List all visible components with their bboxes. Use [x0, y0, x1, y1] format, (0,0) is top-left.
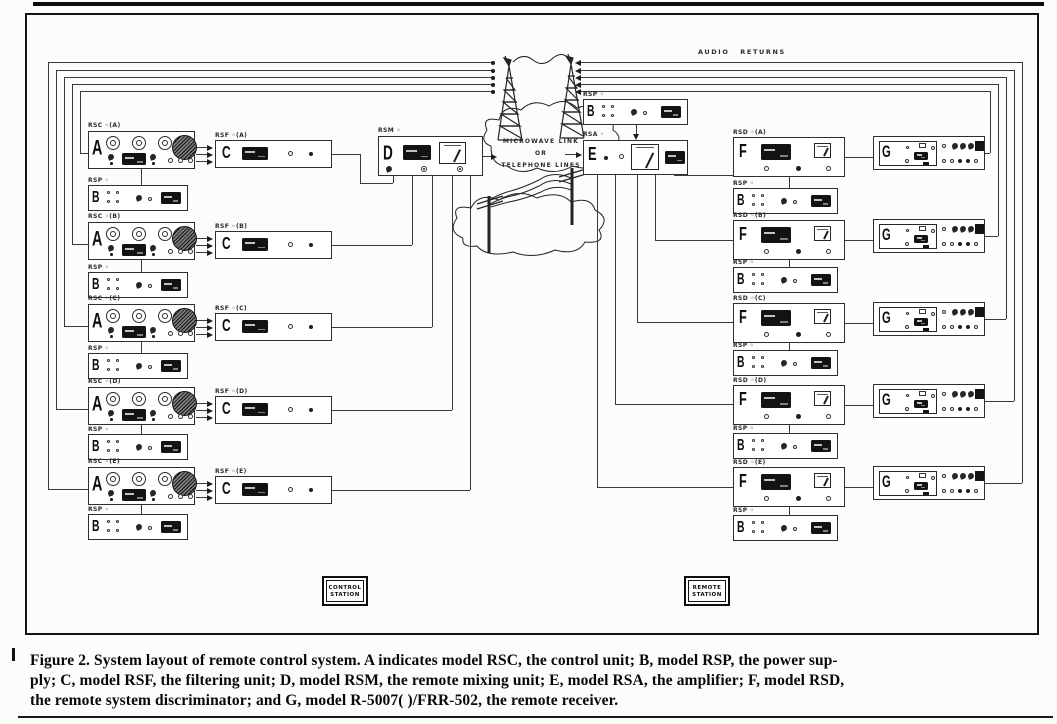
module-block	[975, 471, 984, 481]
jack-circle	[764, 166, 769, 171]
disc-to-receiver-line	[845, 405, 873, 406]
rsc-unit-d-tag: RSC ◦(D)	[88, 378, 121, 385]
pilot-dot	[110, 253, 113, 256]
arrowhead-icon	[207, 481, 213, 487]
rsc-unit-a: A	[88, 131, 195, 169]
jack-circle	[178, 331, 183, 336]
nameplate	[122, 326, 146, 338]
arrowhead-icon	[491, 154, 497, 160]
arrowhead-icon	[575, 68, 581, 74]
arrowhead-icon	[575, 89, 581, 95]
unit-letter: F	[739, 391, 747, 410]
unit-letter: B	[92, 357, 100, 372]
rsd-unit-e: F	[733, 467, 845, 507]
amp-output-line	[615, 404, 733, 405]
module-block	[975, 307, 984, 317]
rsp-unit-right-d-tag: RSP ◦	[733, 425, 754, 432]
vent-dot	[761, 282, 764, 285]
rsc-unit-e: A	[88, 467, 195, 505]
nameplate	[242, 147, 268, 160]
nameplate	[122, 489, 146, 501]
knob-icon	[132, 136, 146, 150]
small-knob-icon	[149, 153, 157, 161]
jack-circle	[826, 496, 831, 501]
jack-circle	[942, 242, 946, 246]
knob-icon	[132, 309, 146, 323]
unit-letter: B	[737, 354, 745, 369]
jack-circle	[931, 394, 935, 398]
small-knob-icon	[780, 197, 788, 205]
speaker-grille-icon	[172, 308, 197, 333]
rsf-unit-c: C	[215, 313, 332, 341]
jack-circle	[942, 310, 946, 314]
small-knob-icon	[967, 308, 975, 316]
jack-dot	[966, 325, 970, 329]
unit-letter: F	[739, 226, 747, 245]
psu-connector	[789, 177, 790, 188]
meter-icon	[814, 309, 831, 324]
control-station-inner: CONTROL STATION	[326, 580, 364, 602]
knob-icon	[106, 227, 120, 241]
filter-output	[393, 176, 394, 183]
dial-window	[919, 143, 926, 148]
vent-dot	[761, 521, 764, 524]
unit-letter: A	[92, 310, 102, 331]
module-block	[975, 224, 984, 234]
nameplate	[242, 483, 268, 496]
vent-dot	[107, 200, 110, 203]
receiver-output	[985, 236, 998, 237]
rsc-unit-b: A	[88, 222, 195, 260]
dial-window	[919, 309, 926, 314]
nameplate	[761, 227, 791, 243]
rsp-unit-right-c: B	[733, 350, 838, 376]
receiver-unit-d: G	[873, 384, 985, 418]
jack-dot	[309, 243, 313, 247]
receiver-unit-c: G	[873, 302, 985, 336]
unit-letter: B	[92, 438, 100, 453]
vent-dot	[116, 200, 119, 203]
small-knob-icon	[959, 142, 967, 150]
jack-dot	[958, 407, 962, 411]
nameplate	[403, 145, 431, 160]
vent-dot	[752, 439, 755, 442]
jack-circle	[950, 489, 954, 493]
vent-dot	[752, 448, 755, 451]
small-knob-icon	[135, 281, 143, 289]
vent-dot	[116, 520, 119, 523]
rsf-unit-b-tag: RSF ◦(B)	[215, 223, 247, 230]
unit-letter: B	[92, 518, 100, 533]
small-knob-icon	[107, 489, 115, 497]
rsd-unit-d-tag: RSD ◦(D)	[733, 377, 767, 384]
nameplate	[122, 409, 146, 421]
control-station-label-box: CONTROL STATION	[322, 576, 368, 606]
jack-circle	[178, 494, 183, 499]
receiver-unit-b: G	[873, 219, 985, 253]
vent-dot	[116, 449, 119, 452]
mixer-output	[483, 156, 491, 157]
figure-caption: Figure 2. System layout of remote contro…	[30, 651, 844, 711]
meter-icon	[631, 144, 659, 170]
vent-dot	[116, 440, 119, 443]
unit-letter: B	[737, 519, 745, 534]
audio-return-line	[72, 84, 493, 85]
rsd-unit-b: F	[733, 220, 845, 260]
arrowhead-icon	[575, 60, 581, 66]
small-knob-icon	[107, 409, 115, 417]
vent-dot	[906, 394, 909, 397]
remote-station-inner: REMOTE STATION	[688, 580, 726, 602]
nameplate	[665, 151, 685, 164]
jack-circle	[942, 159, 946, 163]
arrowhead-icon	[207, 488, 213, 494]
jack-circle	[826, 249, 831, 254]
arrowhead-icon	[207, 243, 213, 249]
nameplate	[914, 235, 928, 243]
link-cloud-label: TELEPHONE LINES	[486, 162, 596, 169]
small-knob-icon	[385, 165, 393, 173]
arrowhead-icon	[207, 415, 213, 421]
jack-circle	[974, 407, 978, 411]
vent-dot	[752, 273, 755, 276]
rsf-unit-a: C	[215, 140, 332, 168]
small-knob-icon	[967, 225, 975, 233]
remote-station-label-box: REMOTE STATION	[684, 576, 730, 606]
vent-dot	[116, 278, 119, 281]
control-input-line	[64, 326, 88, 327]
jack-circle	[942, 392, 946, 396]
arrowhead-icon	[207, 145, 213, 151]
unit-letter: C	[222, 144, 231, 162]
jack-circle	[974, 242, 978, 246]
small-knob-icon	[780, 359, 788, 367]
jack-circle	[950, 242, 954, 246]
rsd-unit-a: F	[733, 137, 845, 177]
control-input-line	[48, 489, 88, 490]
jack-circle	[942, 474, 946, 478]
disc-to-receiver-line	[845, 240, 873, 241]
nameplate	[761, 474, 791, 490]
microwave-tower-icon	[498, 56, 522, 140]
unit-letter: G	[882, 309, 891, 326]
small-knob-icon	[959, 308, 967, 316]
receiver-front-panel: G	[879, 141, 937, 166]
jack-circle	[764, 496, 769, 501]
receiver-front-panel: G	[879, 307, 937, 332]
filter-output	[432, 176, 433, 327]
jack-circle	[168, 249, 173, 254]
jack-dot	[958, 242, 962, 246]
amp-output-line	[655, 175, 656, 240]
disc-to-receiver-line	[845, 323, 873, 324]
nameplate	[914, 482, 928, 490]
audio-return-line	[48, 62, 49, 489]
jack-circle	[905, 489, 909, 493]
vent-dot	[611, 114, 614, 117]
meter-icon	[439, 142, 466, 164]
rsf-unit-a-tag: RSF ◦(A)	[215, 132, 247, 139]
speaker-grille-icon	[172, 226, 197, 251]
caption-line-2: ply; C, model RSF, the filtering unit; D…	[30, 671, 844, 691]
small-knob-icon	[107, 244, 115, 252]
vent-dot	[107, 520, 110, 523]
switch-stub	[923, 492, 929, 495]
pilot-lamp	[148, 284, 152, 288]
filter-output	[360, 154, 361, 183]
vent-dot	[107, 191, 110, 194]
caption-line-3: the remote system discriminator; and G, …	[30, 691, 844, 711]
knob-icon	[106, 392, 120, 406]
small-knob-icon	[135, 362, 143, 370]
zigzag-wave	[513, 54, 569, 63]
unit-letter: B	[92, 276, 100, 291]
jack-dot	[958, 159, 962, 163]
audio-return-line	[64, 77, 65, 326]
nameplate	[811, 357, 831, 369]
filter-output	[452, 176, 453, 410]
small-knob-icon	[149, 244, 157, 252]
small-knob-icon	[959, 472, 967, 480]
small-knob-icon	[951, 390, 959, 398]
jack-circle	[950, 159, 954, 163]
jack-circle	[764, 414, 769, 419]
switch-stub	[923, 410, 929, 413]
arrowhead-icon	[207, 152, 213, 158]
pilot-lamp	[793, 445, 797, 449]
rsp-unit-right-c-tag: RSP ◦	[733, 342, 754, 349]
vent-dot	[116, 287, 119, 290]
audio-return-line	[581, 91, 990, 92]
audio-return-line	[1006, 77, 1007, 319]
jack-dot	[966, 159, 970, 163]
jack-circle	[764, 249, 769, 254]
vent-dot	[906, 312, 909, 315]
nameplate	[761, 310, 791, 326]
small-knob-icon	[951, 308, 959, 316]
receiver-output	[985, 153, 990, 154]
vent-dot	[761, 439, 764, 442]
psu-to-amp	[636, 125, 637, 134]
pilot-lamp	[148, 365, 152, 369]
jack-circle	[974, 489, 978, 493]
vent-dot	[752, 203, 755, 206]
jack-circle	[931, 146, 935, 150]
jack-dot	[796, 414, 801, 419]
vent-dot	[107, 440, 110, 443]
rsp-unit-right-a: B	[733, 188, 838, 214]
jack-circle	[168, 494, 173, 499]
vent-dot	[752, 356, 755, 359]
pilot-lamp	[148, 446, 152, 450]
dial-window	[919, 391, 926, 396]
switch-stub	[923, 162, 929, 165]
jack-circle	[178, 414, 183, 419]
small-knob-icon	[149, 489, 157, 497]
nameplate	[242, 320, 268, 333]
vent-dot	[761, 530, 764, 533]
psu-connector	[789, 343, 790, 350]
page-top-rule	[33, 2, 1044, 6]
unit-letter: E	[588, 146, 597, 165]
jack-circle	[942, 325, 946, 329]
unit-letter: A	[92, 137, 102, 158]
rsc-unit-e-tag: RSC ◦(E)	[88, 458, 120, 465]
filter-output	[412, 176, 413, 245]
amp-output-line	[615, 175, 616, 404]
meter-icon	[814, 143, 831, 158]
unit-letter: G	[882, 473, 891, 490]
jack-dot	[796, 249, 801, 254]
audio-return-line	[48, 62, 493, 63]
knob-icon	[158, 392, 172, 406]
small-knob-icon	[951, 225, 959, 233]
small-knob-icon	[967, 390, 975, 398]
arrowhead-icon	[207, 325, 213, 331]
unit-letter: G	[882, 226, 891, 243]
jack-circle	[188, 494, 193, 499]
small-knob-icon	[780, 276, 788, 284]
rsp-unit-left-a-tag: RSP ◦	[88, 177, 109, 184]
amp-output-line	[637, 322, 733, 323]
audio-return-line	[80, 91, 493, 92]
jack-circle	[931, 312, 935, 316]
vent-dot	[906, 229, 909, 232]
vent-dot	[107, 529, 110, 532]
filter-output	[332, 154, 360, 155]
jack-circle	[288, 487, 293, 492]
knob-icon	[158, 227, 172, 241]
amp-output-line	[637, 175, 638, 322]
jack-dot	[958, 325, 962, 329]
page-bottom-rule	[18, 716, 1053, 718]
vent-dot	[761, 365, 764, 368]
pilot-dot	[152, 498, 155, 501]
rsp-unit-left-a: B	[88, 185, 188, 211]
amp-output-line	[655, 240, 733, 241]
rsd-unit-d: F	[733, 385, 845, 425]
unit-letter: C	[222, 400, 231, 418]
knob-icon	[158, 472, 172, 486]
arrowhead-icon	[207, 250, 213, 256]
nameplate	[811, 522, 831, 534]
pilot-dot	[110, 162, 113, 165]
rsp-unit-left-d: B	[88, 434, 188, 460]
meter-icon	[814, 226, 831, 241]
rsc-unit-d: A	[88, 387, 195, 425]
arrowhead-icon	[575, 82, 581, 88]
speaker-grille-icon	[172, 471, 197, 496]
vent-dot	[906, 476, 909, 479]
psu-connector	[789, 260, 790, 267]
jack-circle	[619, 154, 624, 159]
audio-return-line	[581, 62, 1022, 63]
rsp-unit-left-c-tag: RSP ◦	[88, 345, 109, 352]
jack-circle	[288, 324, 293, 329]
unit-letter: F	[739, 143, 747, 162]
pilot-dot	[152, 162, 155, 165]
pilot-dot	[110, 418, 113, 421]
jack-circle	[974, 159, 978, 163]
audio-return-line	[581, 77, 1006, 78]
rsc-unit-a-tag: RSC ◦(A)	[88, 122, 121, 129]
receiver-output	[985, 483, 1022, 484]
pilot-lamp	[793, 362, 797, 366]
receiver-front-panel: G	[879, 224, 937, 249]
small-knob-icon	[967, 472, 975, 480]
pilot-dot	[110, 498, 113, 501]
control-input-line	[80, 153, 88, 154]
audio-return-line	[64, 77, 493, 78]
small-knob-icon	[780, 524, 788, 532]
filter-output	[332, 410, 452, 411]
knob-icon	[158, 136, 172, 150]
pilot-lamp	[148, 526, 152, 530]
unit-letter: B	[92, 189, 100, 204]
small-knob-icon	[967, 142, 975, 150]
pilot-lamp	[148, 197, 152, 201]
rsc-unit-c: A	[88, 304, 195, 342]
audio-return-line	[998, 84, 999, 236]
arrowhead-icon	[207, 332, 213, 338]
filter-output	[360, 183, 393, 184]
wire-end-dot	[491, 76, 495, 80]
nameplate	[811, 440, 831, 452]
jack-dot	[309, 325, 313, 329]
jack-circle	[168, 158, 173, 163]
filter-output	[470, 176, 471, 490]
nameplate	[161, 441, 181, 453]
jack-circle	[288, 151, 293, 156]
psu-connector	[789, 425, 790, 433]
vent-dot	[611, 105, 614, 108]
rsp-unit-right-e: B	[733, 515, 838, 541]
ink-artifact	[12, 648, 15, 661]
rsf-unit-e: C	[215, 476, 332, 504]
rsd-unit-a-tag: RSD ◦(A)	[733, 129, 766, 136]
jack-circle	[905, 325, 909, 329]
vent-dot	[116, 359, 119, 362]
vent-dot	[107, 287, 110, 290]
rsd-unit-c: F	[733, 303, 845, 343]
vent-dot	[752, 530, 755, 533]
nameplate	[161, 360, 181, 372]
psu-connector	[789, 507, 790, 515]
jack-dot	[423, 168, 425, 170]
small-knob-icon	[149, 326, 157, 334]
jack-dot	[966, 242, 970, 246]
switch-stub	[923, 328, 929, 331]
psu-connector	[141, 260, 142, 272]
receiver-front-panel: G	[879, 389, 937, 414]
unit-letter: A	[92, 393, 102, 414]
vent-dot	[752, 521, 755, 524]
jack-dot	[796, 332, 801, 337]
receiver-output	[985, 319, 1006, 320]
scanned-figure-page: MICROWAVE LINK OR TELEPHONE LINES AUDIO …	[0, 0, 1057, 724]
small-knob-icon	[135, 523, 143, 531]
small-knob-icon	[135, 443, 143, 451]
nameplate	[761, 144, 791, 160]
receiver-unit-a: G	[873, 136, 985, 170]
rsf-unit-e-tag: RSF ◦(E)	[215, 468, 247, 475]
wire-end-dot	[491, 83, 495, 87]
rsp-unit-left-c: B	[88, 353, 188, 379]
nameplate	[161, 279, 181, 291]
switch-stub	[923, 245, 929, 248]
jack-circle	[288, 407, 293, 412]
pilot-lamp	[793, 200, 797, 204]
